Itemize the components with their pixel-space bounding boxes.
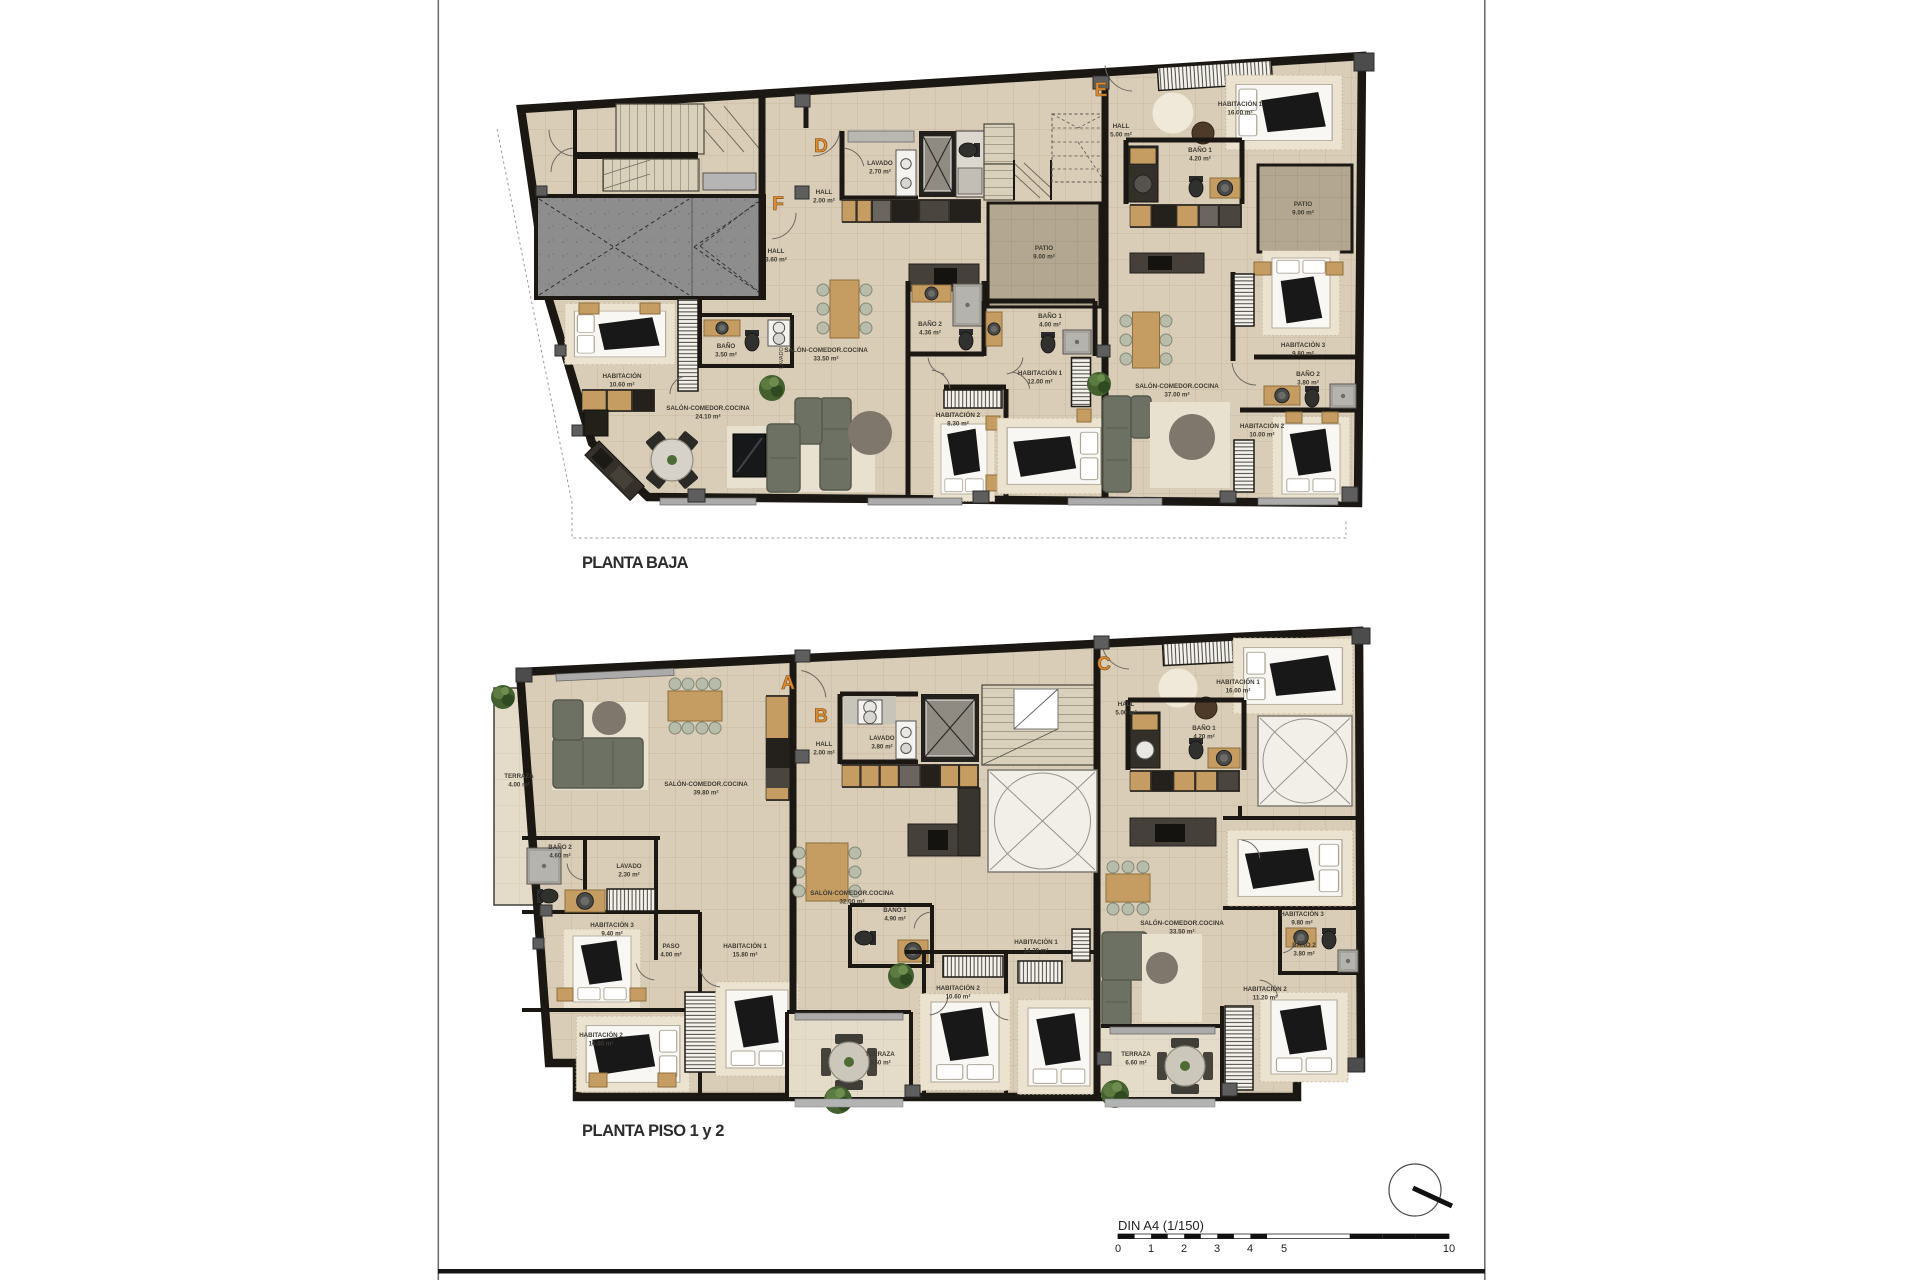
svg-text:HALL2.00 m²: HALL2.00 m²	[813, 741, 834, 757]
svg-text:BAÑO 23.80 m²: BAÑO 23.80 m²	[1296, 369, 1320, 387]
svg-text:BAÑO 24.60 m²: BAÑO 24.60 m²	[548, 844, 572, 860]
svg-text:C: C	[1097, 654, 1111, 675]
svg-text:BAÑO 24.36 m²: BAÑO 24.36 m²	[918, 319, 942, 337]
svg-text:BAÑO 14.00 m²: BAÑO 14.00 m²	[1038, 311, 1062, 329]
svg-text:10: 10	[1443, 1243, 1455, 1255]
svg-text:BAÑO 14.90 m²: BAÑO 14.90 m²	[883, 907, 907, 923]
svg-text:DIN A4 (1/150): DIN A4 (1/150)	[1118, 1218, 1204, 1233]
svg-text:BAÑO3.50 m²: BAÑO3.50 m²	[715, 341, 737, 359]
svg-text:BAÑO 23.80 m²: BAÑO 23.80 m²	[1292, 942, 1316, 958]
svg-text:5: 5	[1281, 1243, 1287, 1255]
svg-text:BAÑO 14.20 m²: BAÑO 14.20 m²	[1192, 725, 1216, 741]
svg-text:HALL5.00 m²: HALL5.00 m²	[1110, 123, 1132, 139]
svg-text:PATIO9.00 m²: PATIO9.00 m²	[1292, 201, 1314, 217]
svg-text:4: 4	[1247, 1243, 1253, 1255]
svg-text:F: F	[772, 194, 784, 215]
svg-text:HALL2.00 m²: HALL2.00 m²	[813, 189, 835, 205]
svg-text:0: 0	[1115, 1243, 1121, 1255]
svg-text:HALL5.00 m²: HALL5.00 m²	[1115, 701, 1136, 717]
svg-text:B: B	[814, 706, 828, 727]
svg-text:PASO4.00 m²: PASO4.00 m²	[660, 943, 681, 959]
svg-text:D: D	[814, 136, 828, 157]
svg-text:PATIO9.00 m²: PATIO9.00 m²	[1033, 245, 1055, 261]
svg-text:HALL3.60 m²: HALL3.60 m²	[765, 248, 787, 264]
svg-text:3: 3	[1214, 1243, 1220, 1255]
svg-text:E: E	[1095, 80, 1108, 101]
svg-text:PLANTA BAJA: PLANTA BAJA	[582, 554, 689, 572]
svg-text:PLANTA PISO 1 y 2: PLANTA PISO 1 y 2	[582, 1122, 724, 1140]
svg-text:A: A	[781, 673, 795, 694]
svg-text:1: 1	[1148, 1243, 1154, 1255]
svg-text:2: 2	[1181, 1243, 1187, 1255]
svg-text:LAVADO2.70 m²: LAVADO2.70 m²	[867, 160, 893, 176]
svg-text:LAVADO3.80 m²: LAVADO3.80 m²	[869, 735, 894, 751]
svg-text:LAVADO2.30 m²: LAVADO2.30 m²	[616, 863, 641, 879]
svg-text:BAÑO 14.20 m²: BAÑO 14.20 m²	[1188, 145, 1212, 163]
